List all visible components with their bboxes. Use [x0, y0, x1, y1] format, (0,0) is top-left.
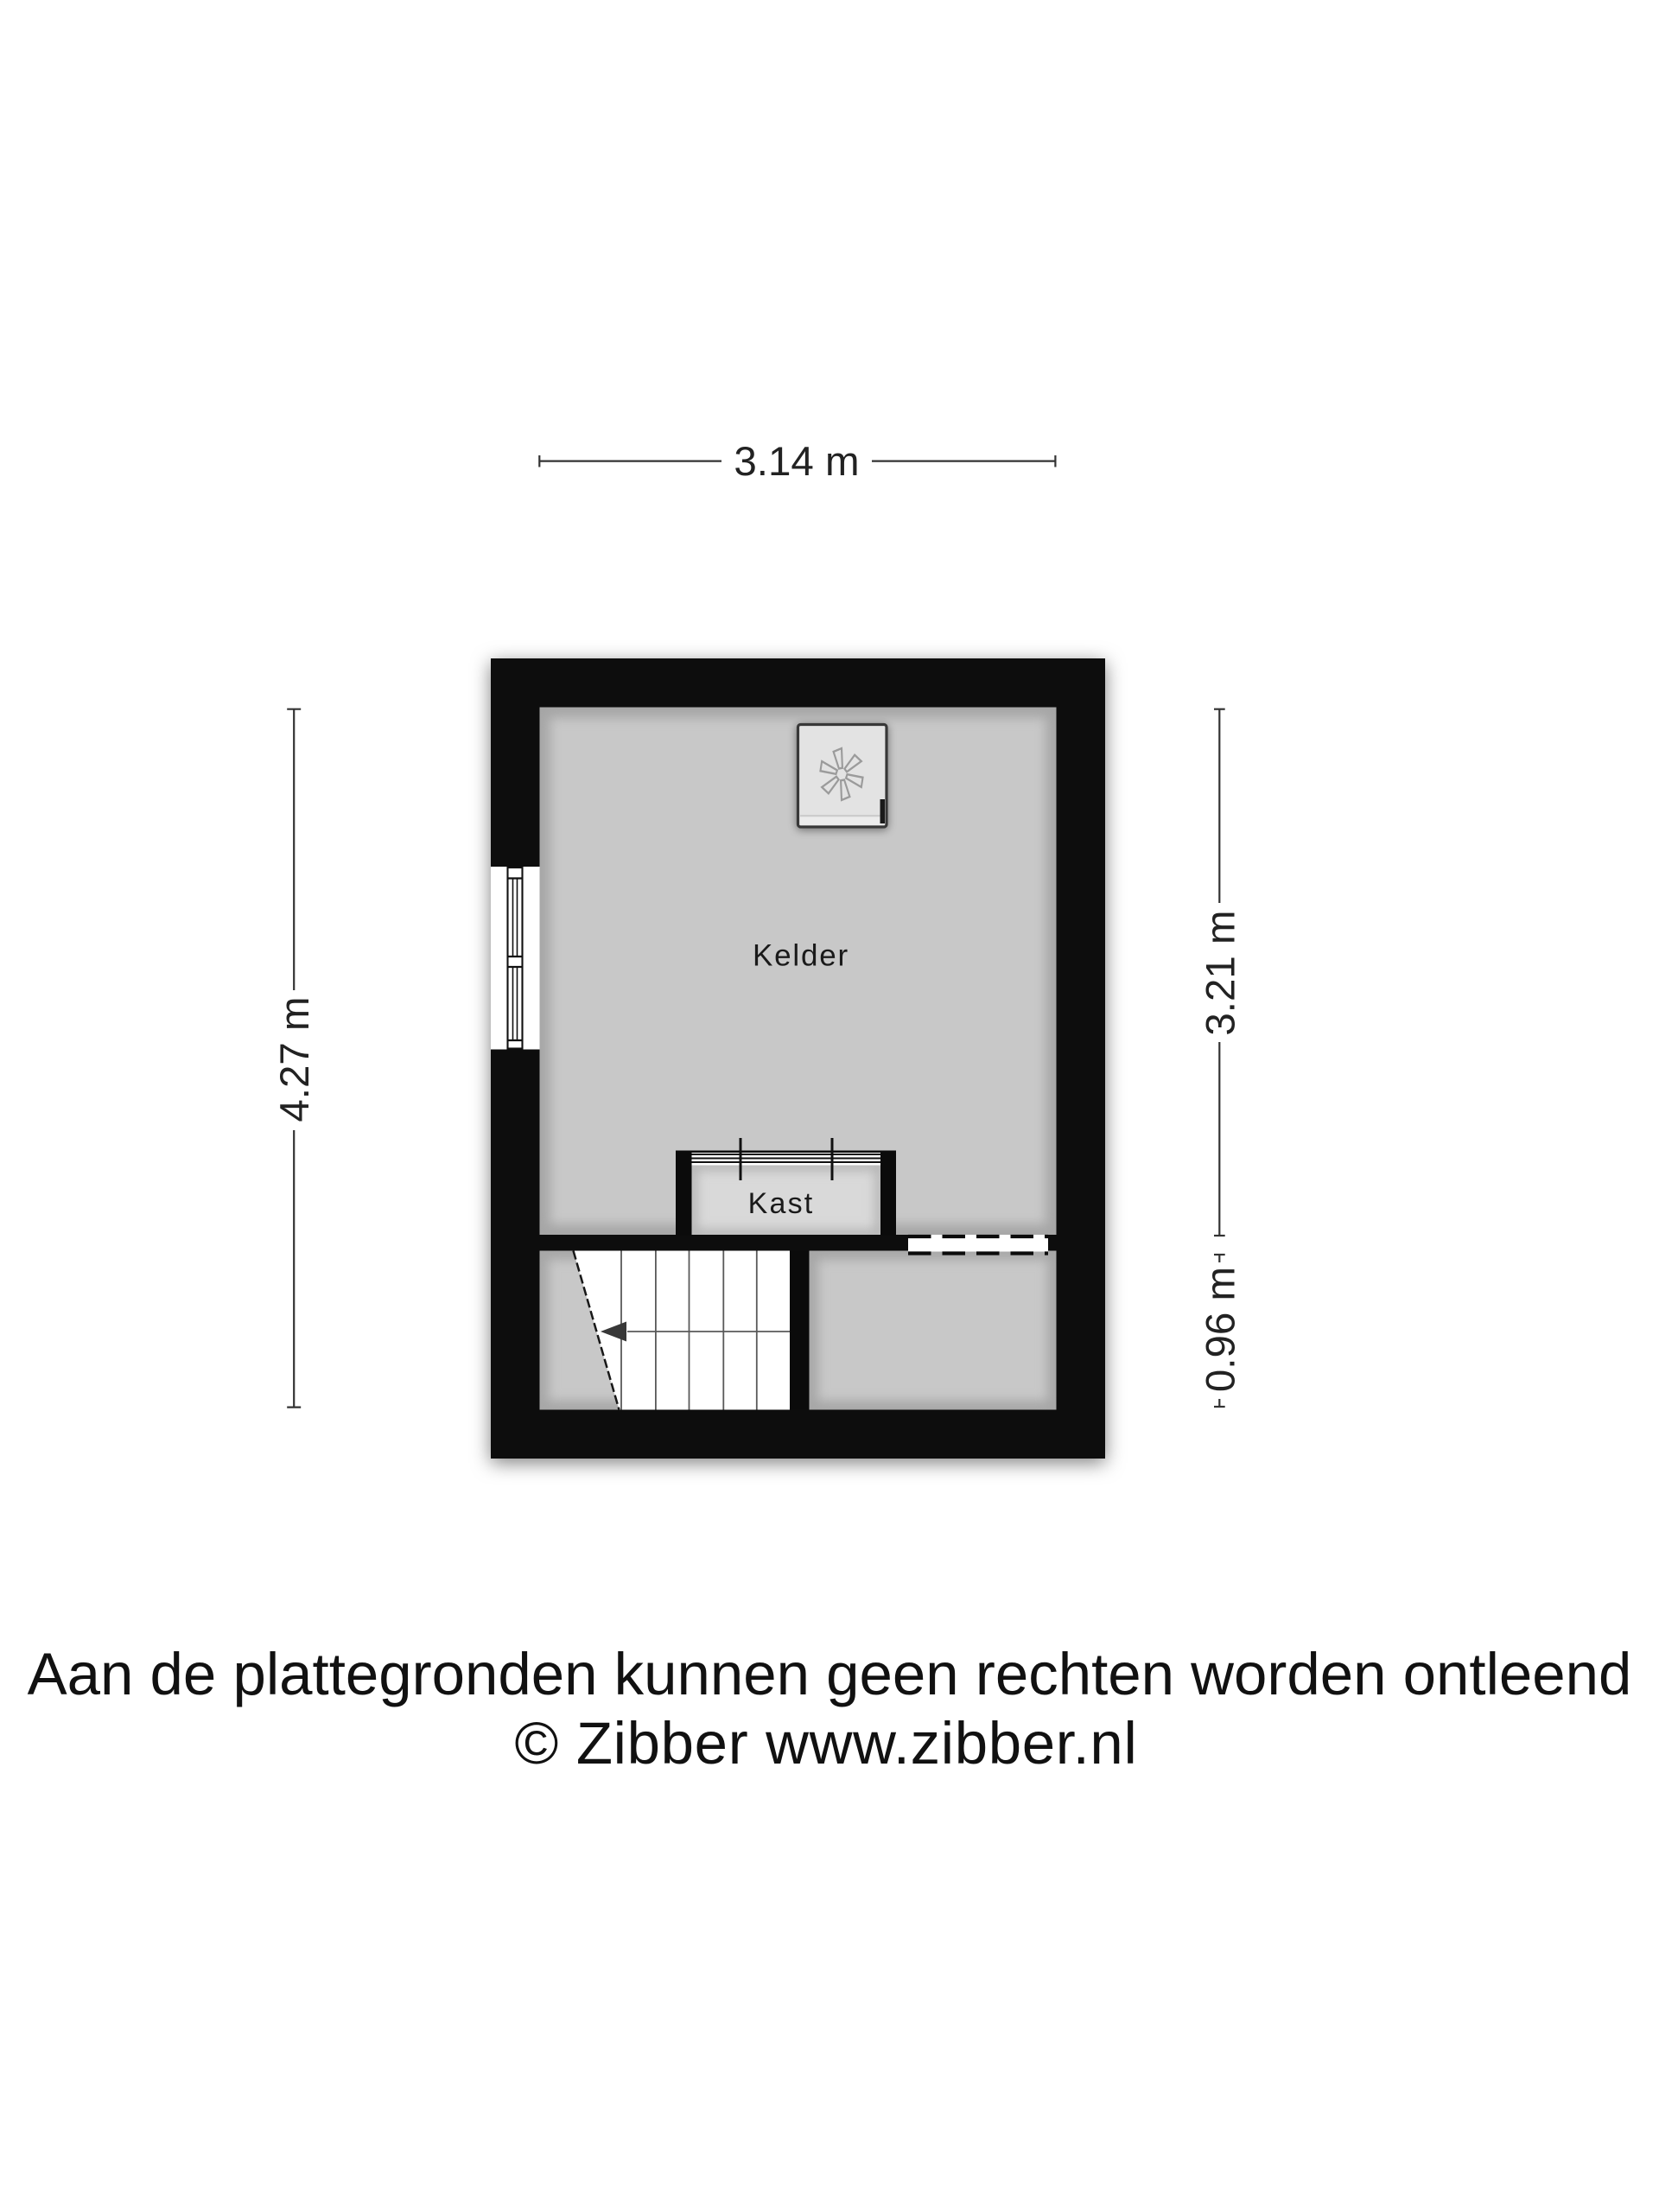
svg-text:Kelder: Kelder	[753, 939, 849, 973]
svg-text:3.21 m: 3.21 m	[1198, 910, 1243, 1035]
svg-text:3.14 m: 3.14 m	[734, 439, 859, 485]
svg-text:Kast: Kast	[748, 1187, 815, 1220]
svg-text:© Zibber www.zibber.nl: © Zibber www.zibber.nl	[515, 1710, 1138, 1777]
svg-text:4.27 m: 4.27 m	[272, 996, 318, 1122]
svg-text:Aan de plattegronden kunnen ge: Aan de plattegronden kunnen geen rechten…	[28, 1641, 1632, 1707]
svg-text:0.96 m: 0.96 m	[1198, 1267, 1243, 1392]
